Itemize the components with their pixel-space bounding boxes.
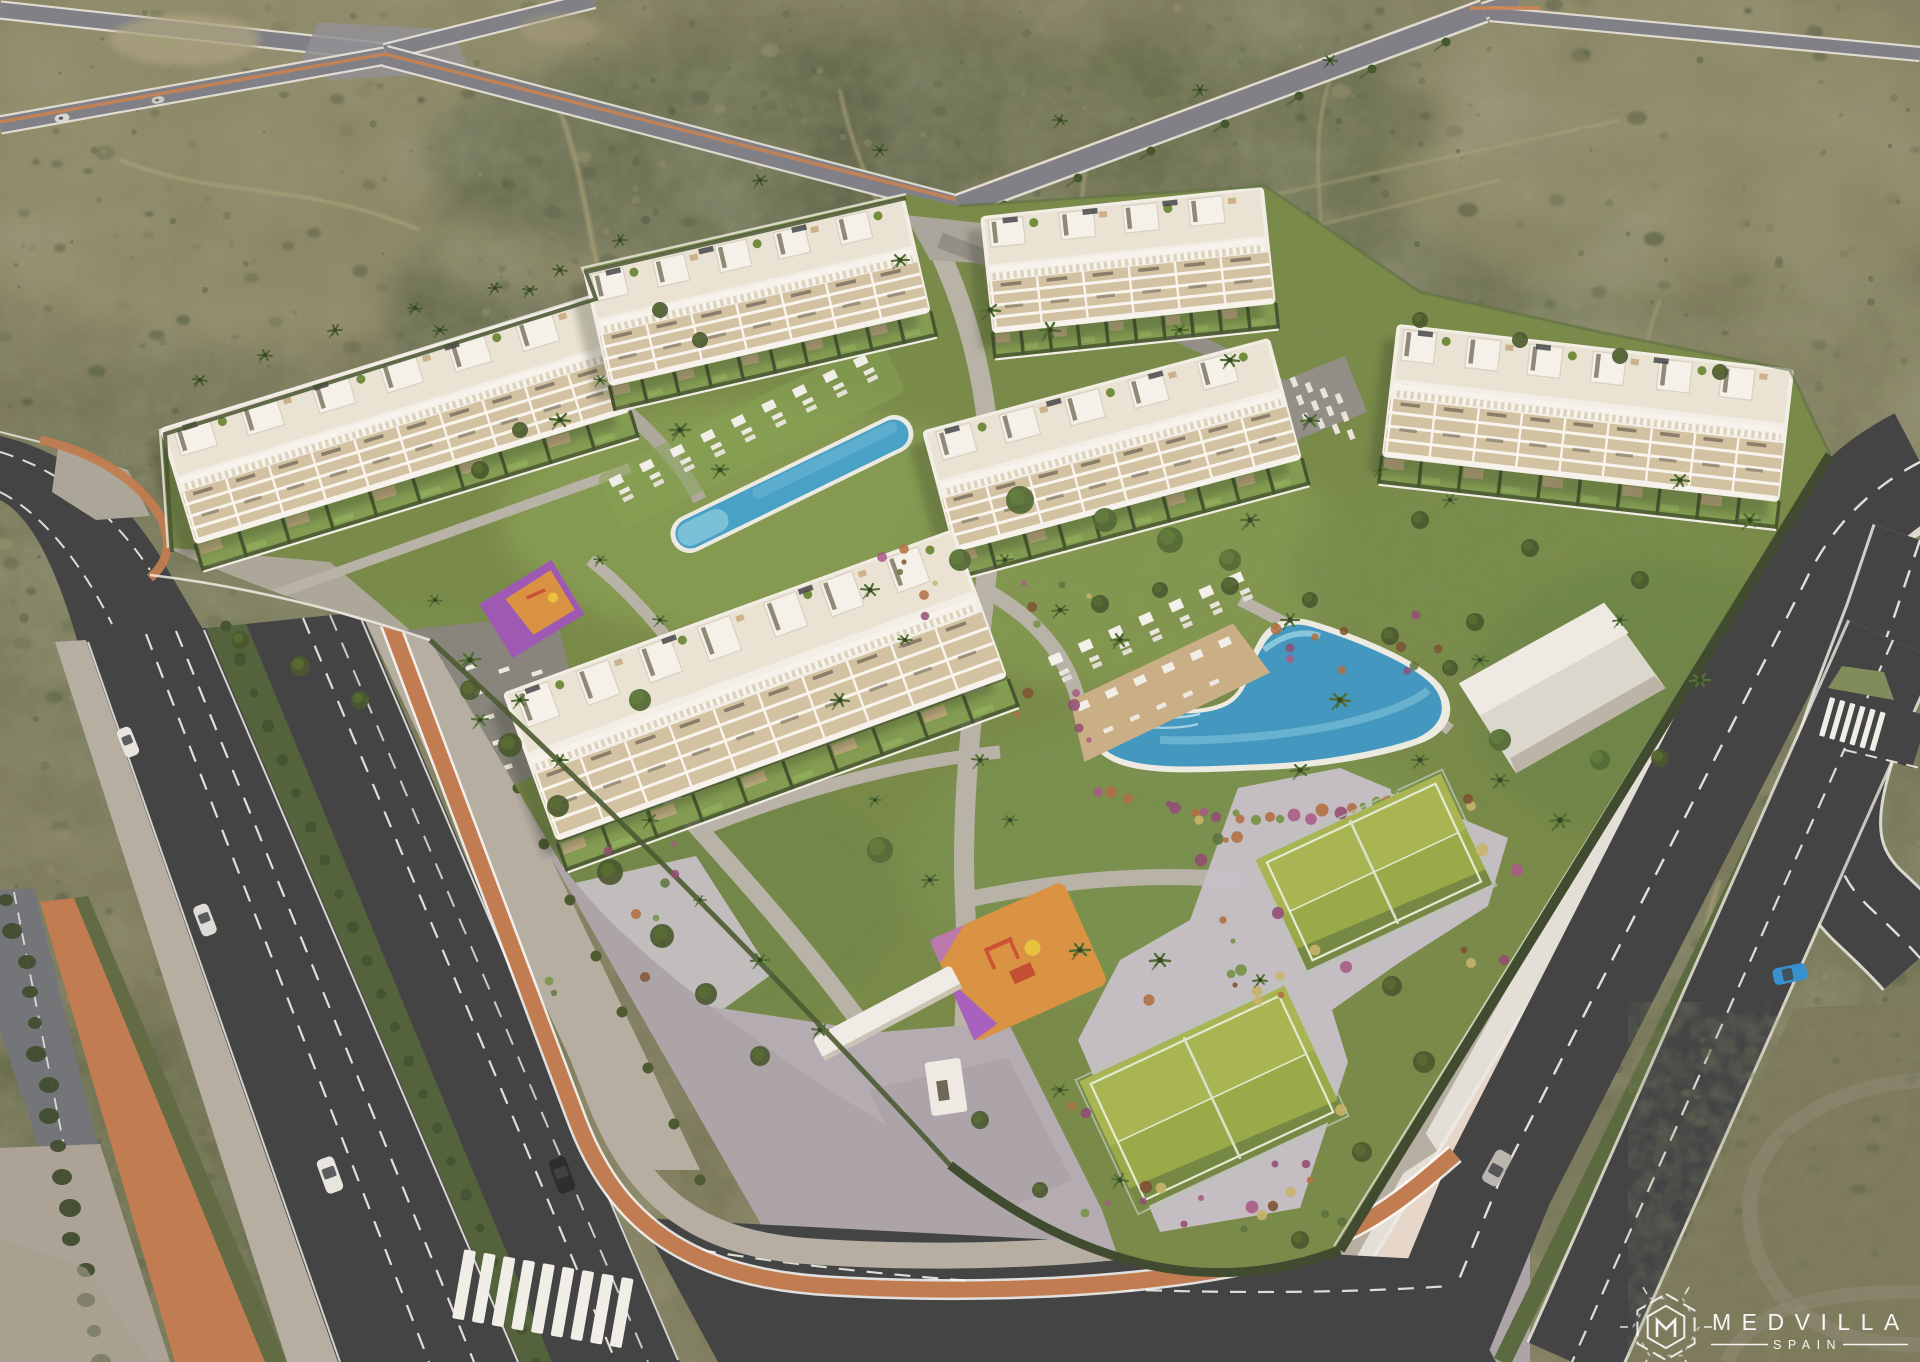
svg-text:SPAIN: SPAIN [1773,1338,1842,1352]
svg-text:MEDVILLA: MEDVILLA [1712,1309,1910,1335]
